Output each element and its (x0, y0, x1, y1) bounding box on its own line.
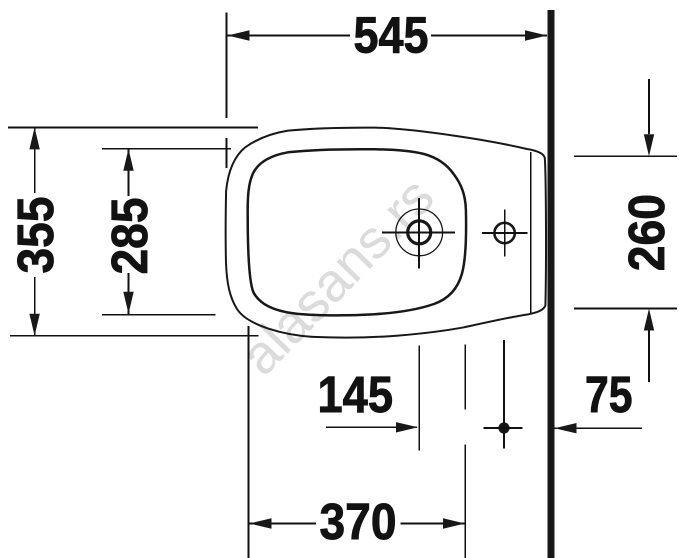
svg-text:145: 145 (318, 366, 394, 423)
svg-text:355: 355 (7, 197, 64, 274)
svg-text:370: 370 (320, 493, 397, 550)
svg-text:285: 285 (101, 198, 158, 275)
svg-text:545: 545 (354, 7, 429, 64)
svg-text:75: 75 (585, 366, 633, 423)
svg-text:260: 260 (618, 194, 675, 271)
